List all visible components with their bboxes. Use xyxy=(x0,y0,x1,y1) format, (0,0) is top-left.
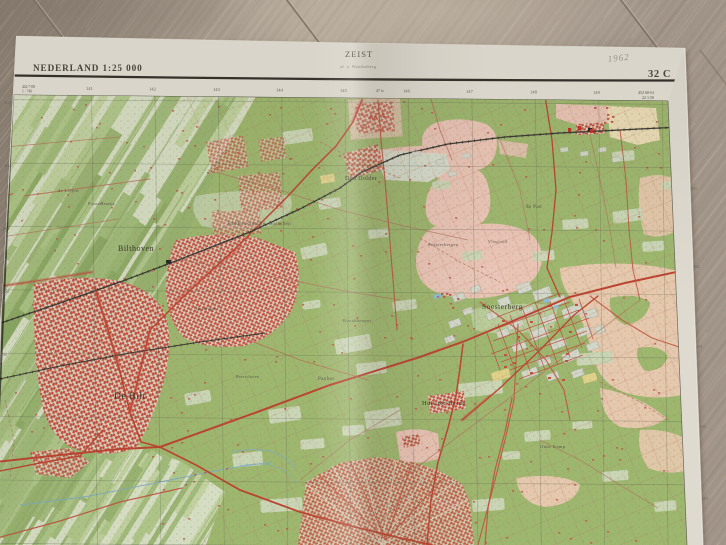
svg-text:452: 452 xyxy=(693,264,700,269)
svg-text:451: 451 xyxy=(696,344,703,349)
svg-text:463: 463 xyxy=(4,100,12,105)
svg-text:453: 453 xyxy=(690,186,698,191)
svg-text:450: 450 xyxy=(699,424,707,429)
svg-text:449: 449 xyxy=(701,496,709,501)
